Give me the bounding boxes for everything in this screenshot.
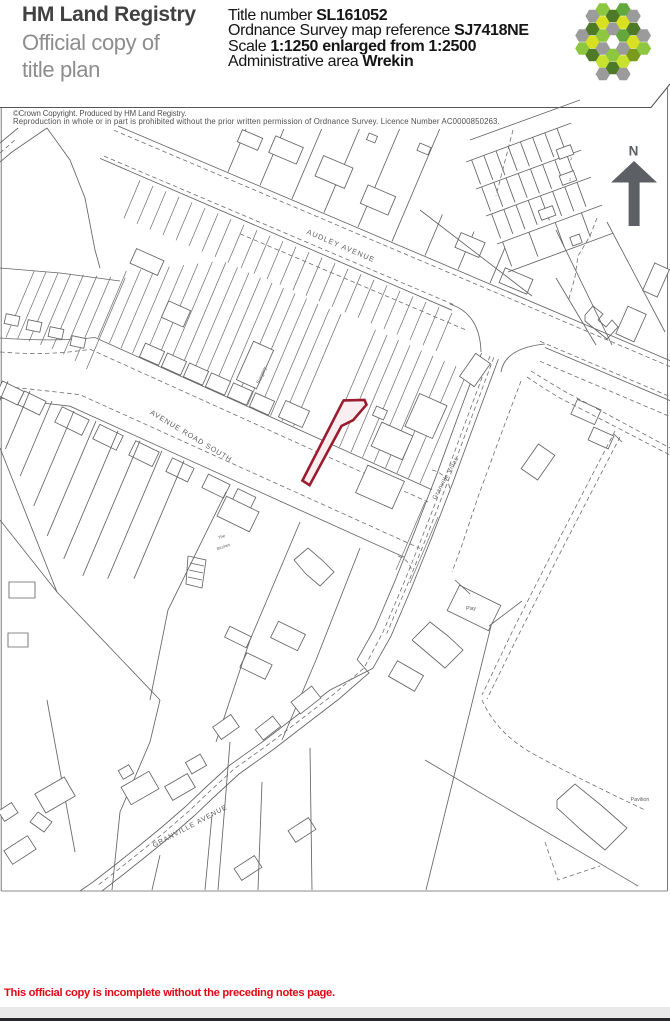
svg-text:Granville Villas: Granville Villas [432, 456, 460, 501]
svg-text:AUDLEY AVENUE: AUDLEY AVENUE [305, 227, 376, 264]
svg-text:The: The [217, 533, 226, 540]
svg-text:N: N [629, 144, 639, 159]
svg-text:Play: Play [466, 606, 476, 612]
svg-text:Pavilion: Pavilion [631, 797, 650, 803]
svg-text:GRANVILLE AVENUE: GRANVILLE AVENUE [152, 804, 229, 849]
svg-text:2: 2 [569, 178, 571, 182]
svg-text:3: 3 [570, 157, 572, 161]
svg-text:Birches: Birches [216, 542, 231, 551]
svg-text:AVENUE ROAD SOUTH: AVENUE ROAD SOUTH [149, 408, 234, 464]
